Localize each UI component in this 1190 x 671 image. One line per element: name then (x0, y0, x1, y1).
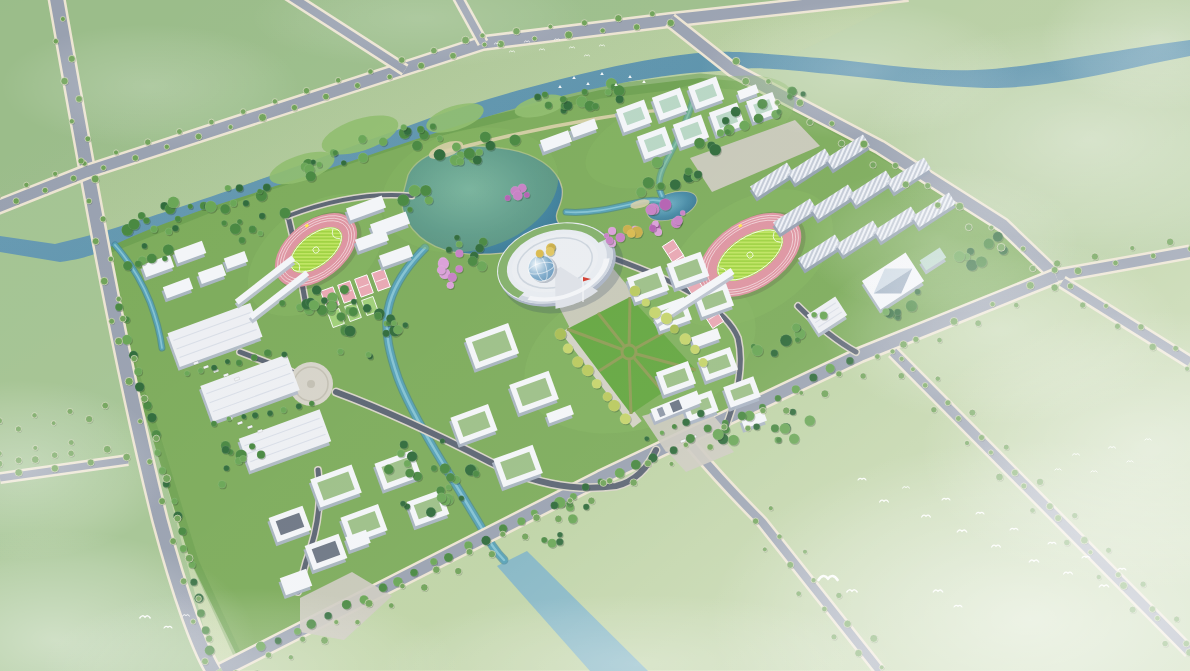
scene-svg: Aerial architectural rendering of a univ… (0, 0, 1190, 671)
fog-haze (0, 0, 1190, 671)
campus-rendering: Aerial architectural rendering of a univ… (0, 0, 1190, 671)
